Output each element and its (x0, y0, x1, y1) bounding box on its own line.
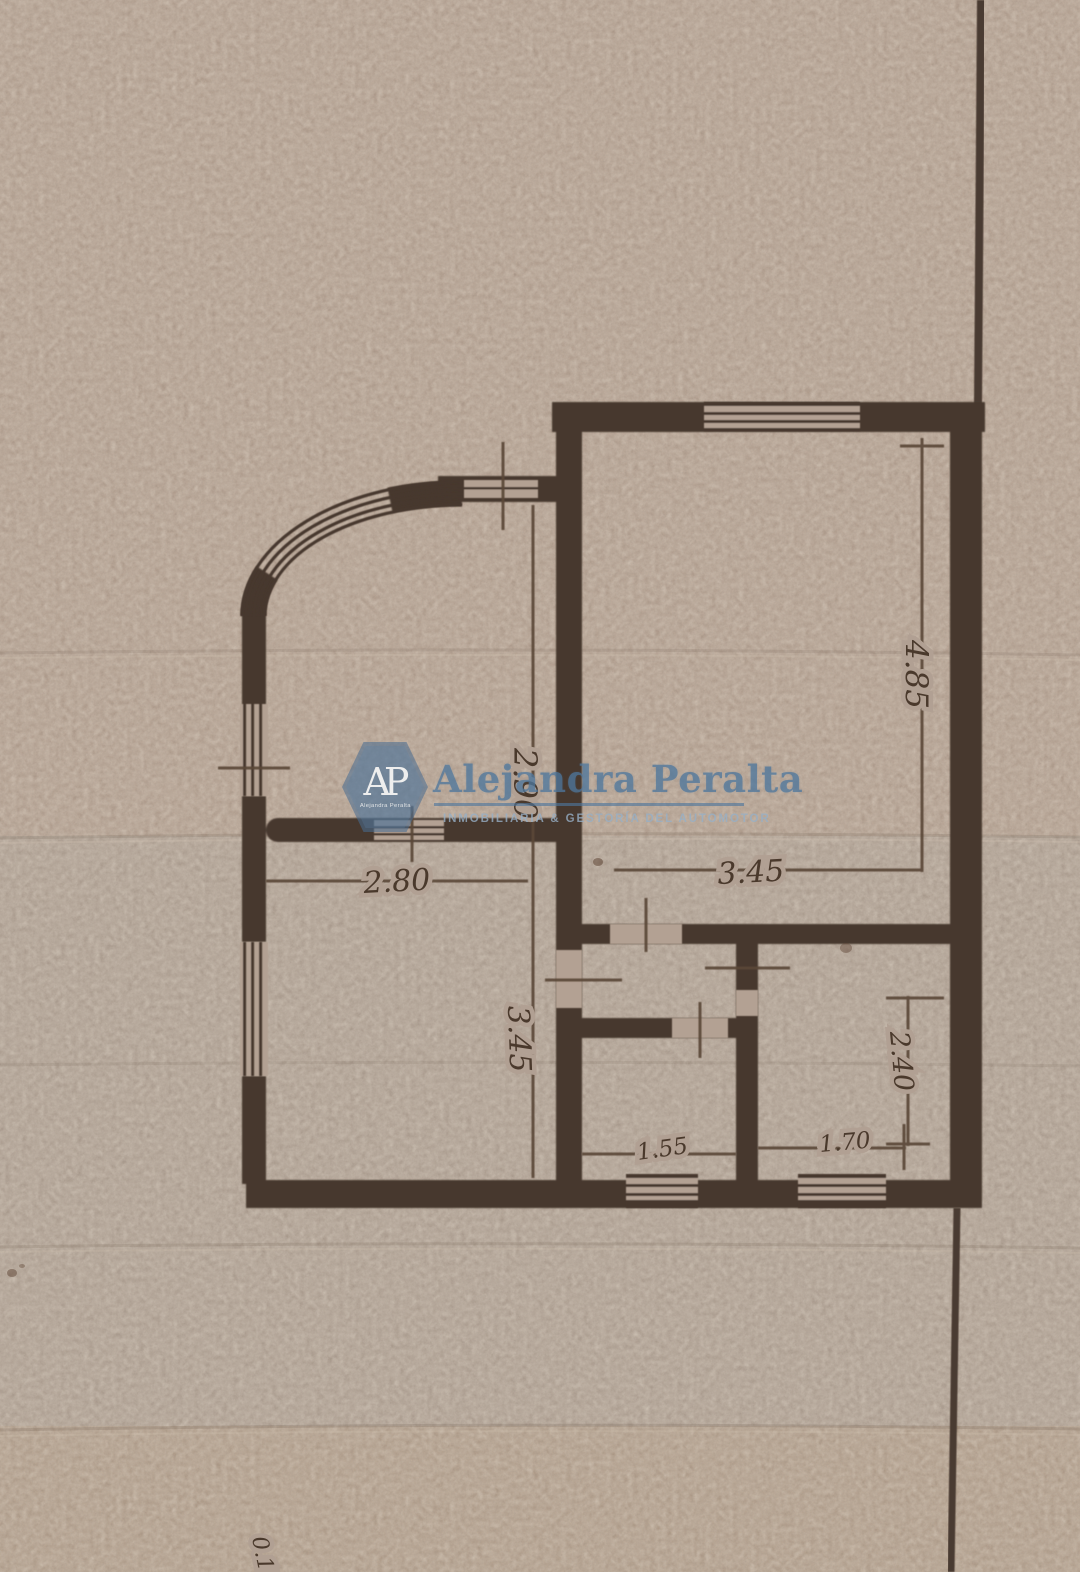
door-bathroom-side (736, 990, 758, 1016)
dimension-label-345-vertical: 3.45 (500, 1005, 537, 1073)
dimension-label-345-horizontal: 3.45 (717, 854, 786, 892)
dimension-label-170: 1.70 (818, 1128, 871, 1158)
wall-bathroom-right (736, 944, 758, 1180)
window-left-upper (240, 704, 268, 796)
photographed-floorplan: 2.90 4.85 2.80 3.45 3.45 2.40 1.55 1.70 … (0, 0, 1080, 1572)
window-top (704, 402, 860, 431)
wall-right (950, 402, 982, 1208)
dimension-label-240: 2.40 (883, 1029, 919, 1093)
door-divider-left (374, 820, 444, 840)
window-bottom-left (626, 1174, 698, 1208)
dimension-label-485: 4.85 (898, 639, 934, 709)
wall-bathroom-top (582, 1018, 758, 1038)
floorplan-drawing: 2.90 4.85 2.80 3.45 3.45 2.40 1.55 1.70 … (0, 0, 1080, 1572)
boundary-line-top (978, 0, 981, 404)
wall-left-middle (242, 796, 266, 942)
door-entry (464, 480, 538, 498)
wall-left-lower (242, 1076, 266, 1184)
dimension-label-290: 2.90 (506, 747, 544, 819)
window-left-lower (240, 942, 268, 1076)
wall-left-upper (242, 608, 266, 706)
window-bottom-right (798, 1174, 886, 1208)
wall-central (556, 432, 582, 1180)
dimension-label-280: 2.80 (362, 863, 432, 902)
